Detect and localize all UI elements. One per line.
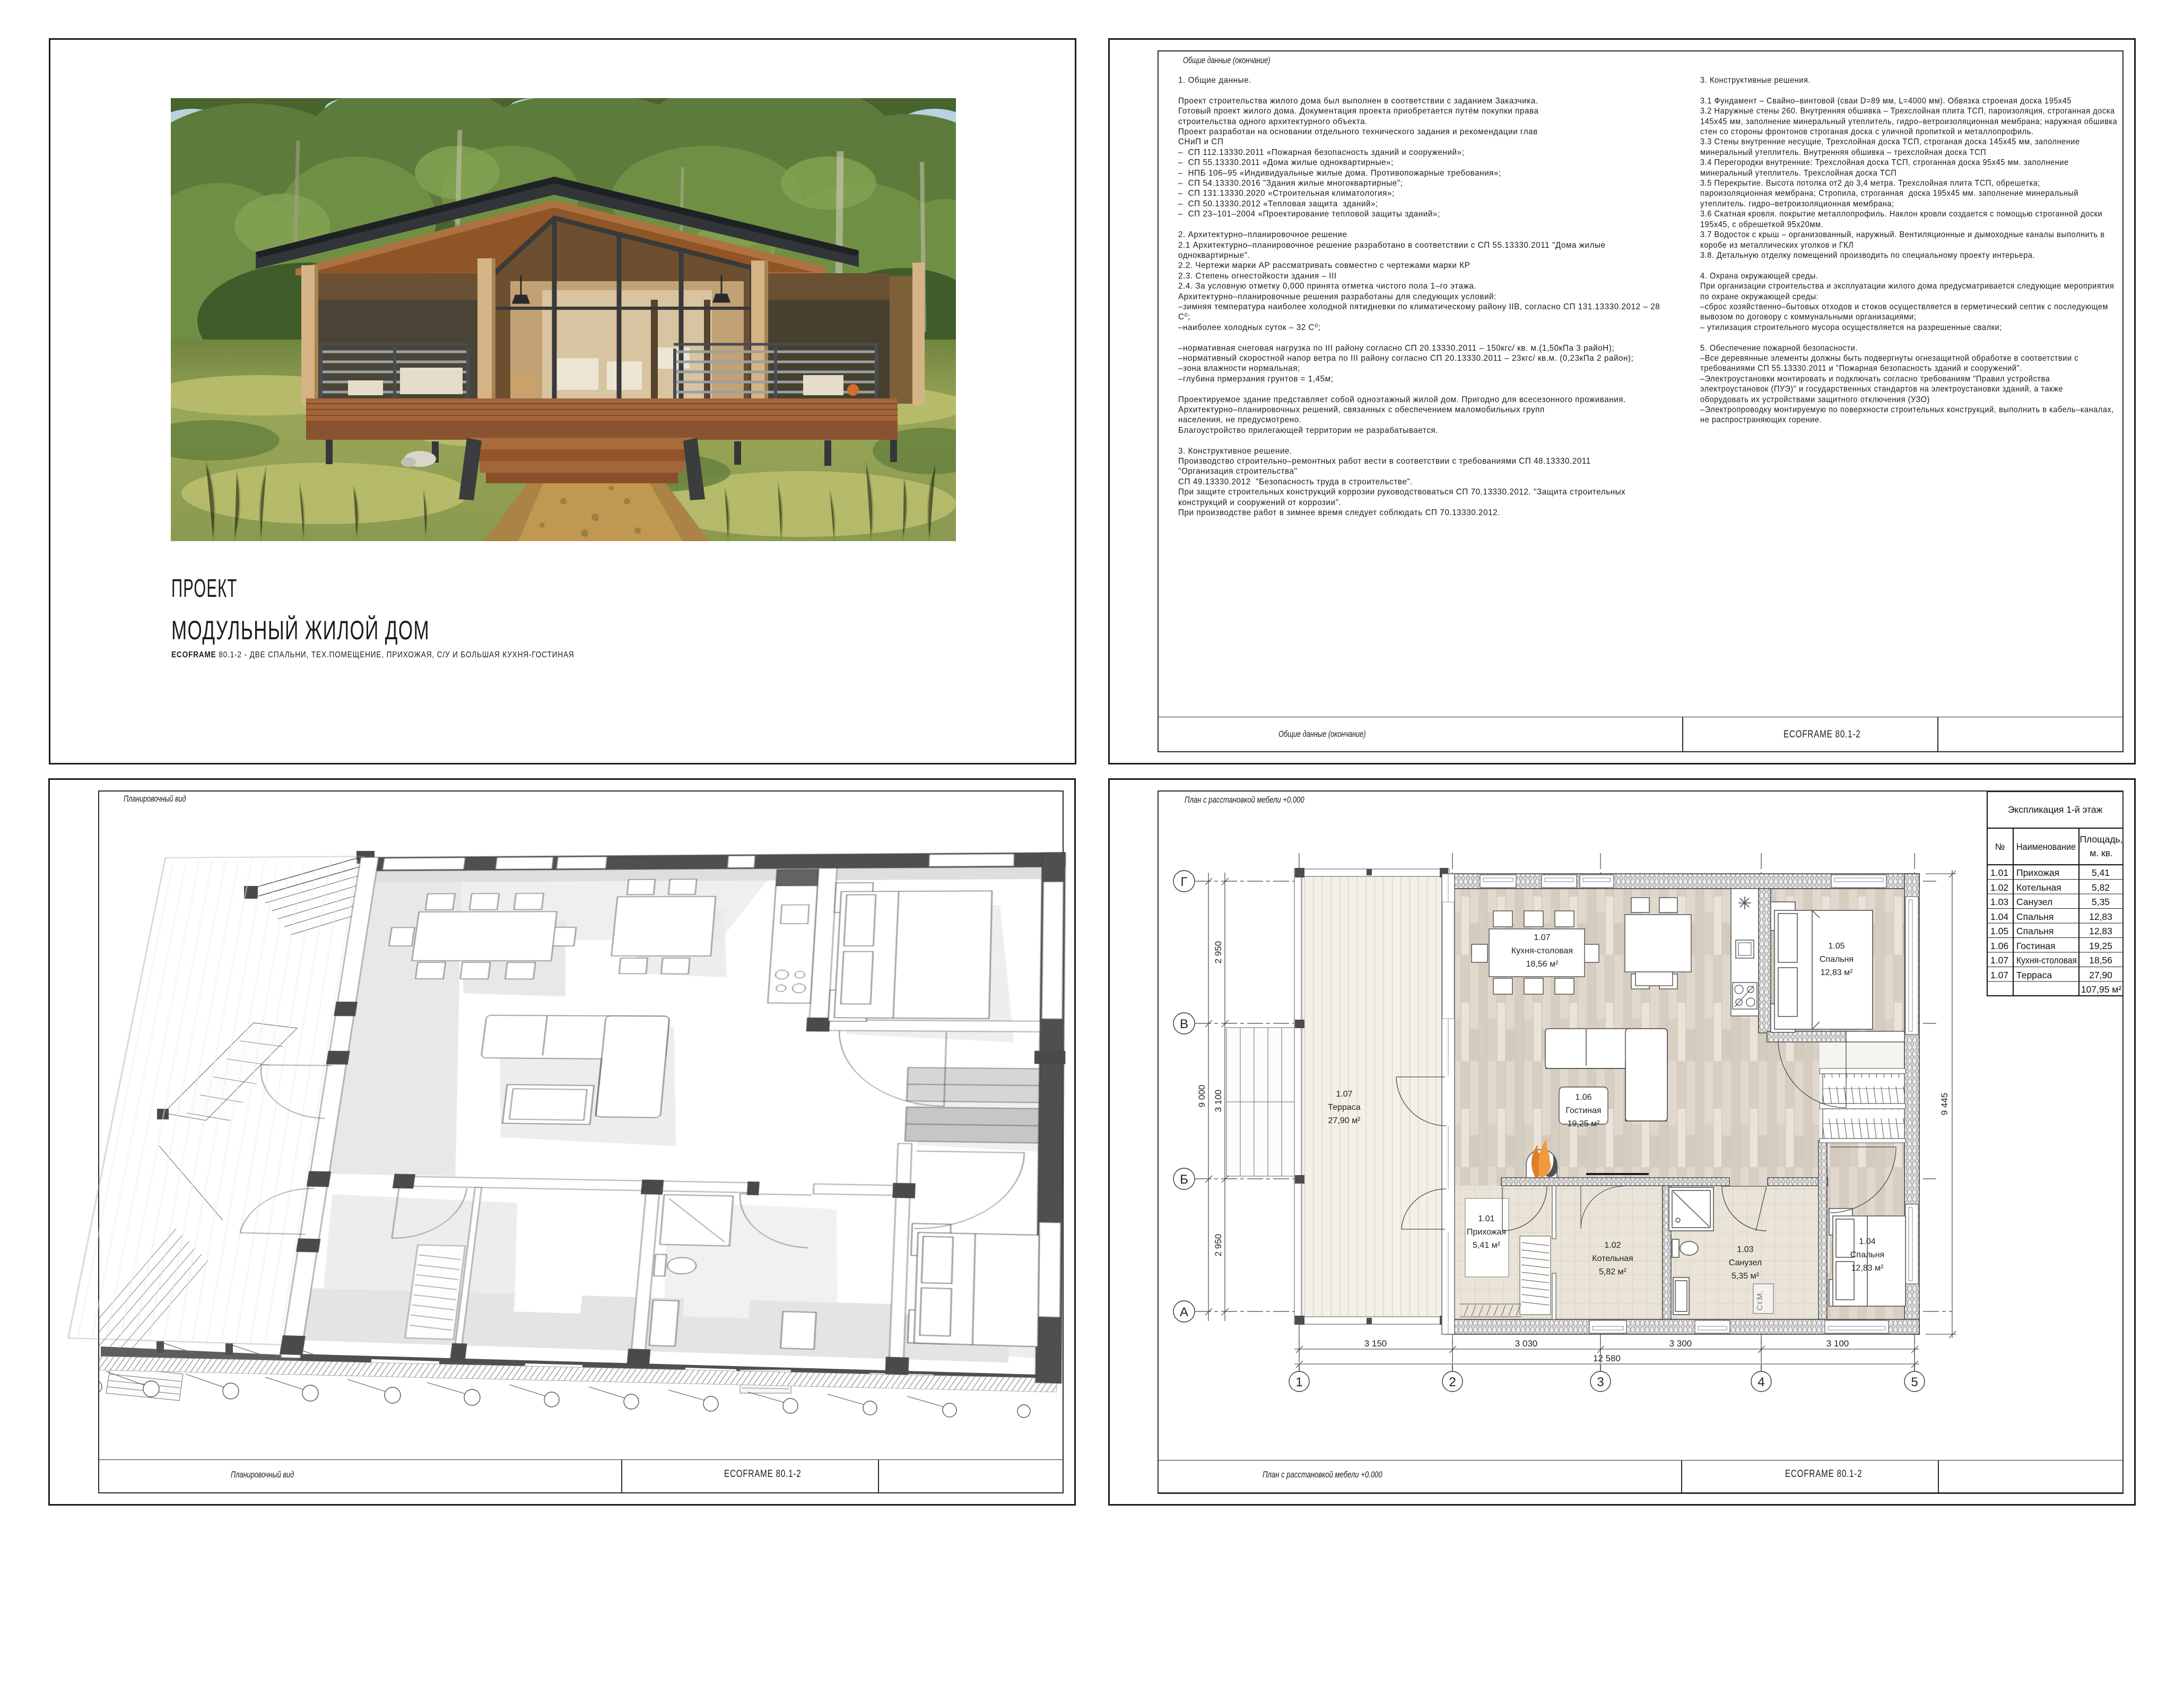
svg-text:1.07: 1.07 (1534, 933, 1550, 942)
svg-text:12,83: 12,83 (2089, 911, 2112, 922)
svg-text:1.07: 1.07 (1990, 955, 2008, 966)
svg-text:Терраса: Терраса (2016, 970, 2052, 980)
svg-text:Санузел: Санузел (2016, 897, 2052, 907)
svg-text:12,83 м²: 12,83 м² (1821, 968, 1853, 977)
svg-text:м. кв.: м. кв. (2090, 848, 2113, 858)
svg-text:1.01: 1.01 (1478, 1214, 1494, 1223)
svg-text:Спальня: Спальня (2016, 911, 2054, 922)
svg-text:Котельная: Котельная (1592, 1254, 1633, 1263)
svg-text:5,41: 5,41 (2092, 867, 2110, 878)
svg-text:Экспликация 1-й этаж: Экспликация 1-й этаж (2008, 804, 2103, 815)
svg-text:А: А (1180, 1305, 1188, 1319)
svg-text:18,56: 18,56 (2089, 955, 2112, 966)
svg-text:1: 1 (1295, 1375, 1302, 1389)
svg-text:Кухня-столовая: Кухня-столовая (1511, 946, 1573, 955)
svg-text:3 030: 3 030 (1515, 1338, 1538, 1349)
svg-text:12,83 м²: 12,83 м² (1851, 1264, 1884, 1273)
svg-text:9 445: 9 445 (1939, 1093, 1950, 1116)
svg-text:1.04: 1.04 (1859, 1237, 1875, 1246)
svg-text:5,35 м²: 5,35 м² (1731, 1272, 1760, 1281)
svg-text:Наименование: Наименование (2016, 841, 2076, 852)
svg-text:3 300: 3 300 (1669, 1338, 1692, 1349)
svg-text:3: 3 (1597, 1375, 1604, 1389)
svg-text:1.06: 1.06 (1990, 941, 2008, 951)
svg-text:19,25 м²: 19,25 м² (1568, 1119, 1600, 1128)
svg-text:Ст.М.: Ст.М. (1755, 1291, 1764, 1311)
svg-text:Б: Б (1180, 1172, 1188, 1187)
svg-text:Санузел: Санузел (1729, 1258, 1762, 1267)
svg-text:Спальня: Спальня (1820, 955, 1854, 964)
svg-text:Терраса: Терраса (1328, 1103, 1360, 1112)
svg-text:107,95 м²: 107,95 м² (2081, 984, 2121, 995)
svg-text:19,25: 19,25 (2089, 941, 2112, 951)
svg-text:1.04: 1.04 (1990, 911, 2008, 922)
svg-text:1.02: 1.02 (1604, 1241, 1621, 1250)
svg-text:1.05: 1.05 (1990, 926, 2008, 936)
svg-text:1.07: 1.07 (1336, 1090, 1352, 1099)
svg-text:5,82: 5,82 (2092, 882, 2110, 893)
svg-text:9 000: 9 000 (1197, 1085, 1207, 1108)
svg-text:1.03: 1.03 (1990, 897, 2008, 907)
svg-text:12,83: 12,83 (2089, 926, 2112, 936)
svg-text:Гостиная: Гостиная (2016, 941, 2055, 951)
svg-text:№: № (1995, 841, 2005, 852)
svg-text:3 100: 3 100 (1826, 1338, 1849, 1349)
svg-text:В: В (1180, 1017, 1188, 1031)
svg-text:Прихожая: Прихожая (1467, 1228, 1506, 1237)
svg-text:2: 2 (1449, 1375, 1456, 1389)
svg-text:1.05: 1.05 (1828, 942, 1844, 951)
svg-text:Спальня: Спальня (1850, 1250, 1884, 1259)
svg-text:1.07: 1.07 (1990, 970, 2008, 980)
svg-text:1.01: 1.01 (1990, 867, 2008, 878)
svg-text:3 100: 3 100 (1213, 1090, 1223, 1112)
svg-text:Гостиная: Гостиная (1565, 1106, 1601, 1115)
svg-text:27,90 м²: 27,90 м² (1328, 1116, 1361, 1125)
svg-text:1.02: 1.02 (1990, 882, 2008, 893)
svg-text:Г: Г (1181, 875, 1188, 889)
svg-text:2 950: 2 950 (1213, 1234, 1223, 1257)
svg-text:Котельная: Котельная (2016, 882, 2061, 893)
svg-text:2 950: 2 950 (1213, 941, 1223, 964)
svg-text:4: 4 (1757, 1375, 1764, 1389)
svg-text:Спальня: Спальня (2016, 926, 2054, 936)
svg-text:Площадь,: Площадь, (2079, 834, 2122, 845)
svg-text:1.03: 1.03 (1737, 1245, 1753, 1254)
svg-text:27,90: 27,90 (2089, 970, 2112, 980)
svg-text:5,41 м²: 5,41 м² (1473, 1241, 1501, 1250)
svg-text:18,56 м²: 18,56 м² (1526, 960, 1559, 969)
svg-text:5,82 м²: 5,82 м² (1599, 1267, 1627, 1276)
svg-text:3 150: 3 150 (1364, 1338, 1387, 1349)
svg-text:1.06: 1.06 (1575, 1093, 1591, 1102)
svg-text:5: 5 (1911, 1375, 1918, 1389)
svg-text:Кухня-столовая: Кухня-столовая (2016, 955, 2077, 966)
svg-text:Прихожая: Прихожая (2016, 867, 2059, 878)
svg-text:5,35: 5,35 (2092, 897, 2110, 907)
svg-text:12 580: 12 580 (1593, 1353, 1621, 1363)
